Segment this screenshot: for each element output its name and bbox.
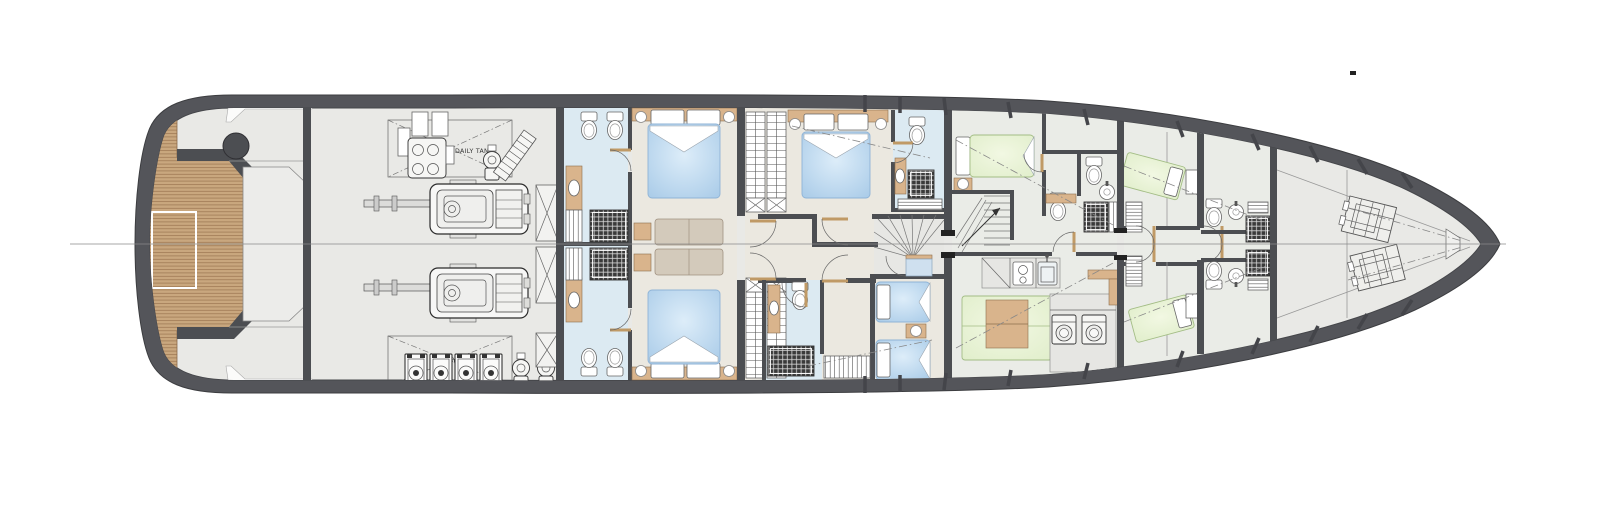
desk (1109, 279, 1118, 305)
bulkhead-crew (944, 100, 952, 230)
pillow (877, 285, 890, 319)
pillow (956, 137, 970, 175)
shower (908, 170, 934, 198)
sink-icon (569, 180, 580, 196)
pillow (687, 110, 720, 125)
headboard (632, 367, 737, 380)
sink-icon (569, 292, 580, 308)
headboard (632, 108, 737, 121)
bidet-icon (607, 112, 623, 140)
toilet-icon (581, 349, 597, 377)
bidet-icon (607, 349, 623, 377)
shower (768, 346, 814, 376)
shower (590, 210, 628, 242)
toilet-icon (1206, 199, 1222, 227)
toilet-icon (909, 117, 925, 145)
pillow (877, 343, 890, 377)
bulkhead-forward-2 (1197, 131, 1204, 228)
deck-plan-svg: DAILY TANK DAILY TANK (0, 0, 1618, 521)
pillow (651, 363, 684, 378)
pillow (804, 114, 834, 130)
shower (1246, 216, 1270, 242)
pillow (687, 363, 720, 378)
equipment-racks (536, 185, 558, 367)
toilet-icon (1086, 157, 1102, 185)
toilet-icon (581, 112, 597, 140)
galley (982, 254, 1060, 288)
bulkhead-guest (737, 98, 745, 216)
side-table (634, 254, 651, 271)
side-table (634, 223, 651, 240)
shower (590, 248, 628, 280)
sink-icon (770, 301, 779, 315)
washer-icon (1082, 315, 1106, 344)
bulkhead-forward-1 (1117, 116, 1124, 228)
vanity (1046, 194, 1076, 203)
capstan (223, 133, 249, 159)
pillow (838, 114, 868, 130)
stray-mark (1350, 71, 1356, 75)
shower (1084, 202, 1108, 232)
pillow (651, 110, 684, 125)
yacht-lower-deck-plan: DAILY TANK DAILY TANK (0, 0, 1618, 521)
toilet-icon (1206, 262, 1222, 290)
washer-icon (1052, 315, 1076, 344)
crew-mess (962, 296, 1052, 360)
sink-icon (896, 169, 905, 183)
stair-landing (906, 259, 932, 276)
